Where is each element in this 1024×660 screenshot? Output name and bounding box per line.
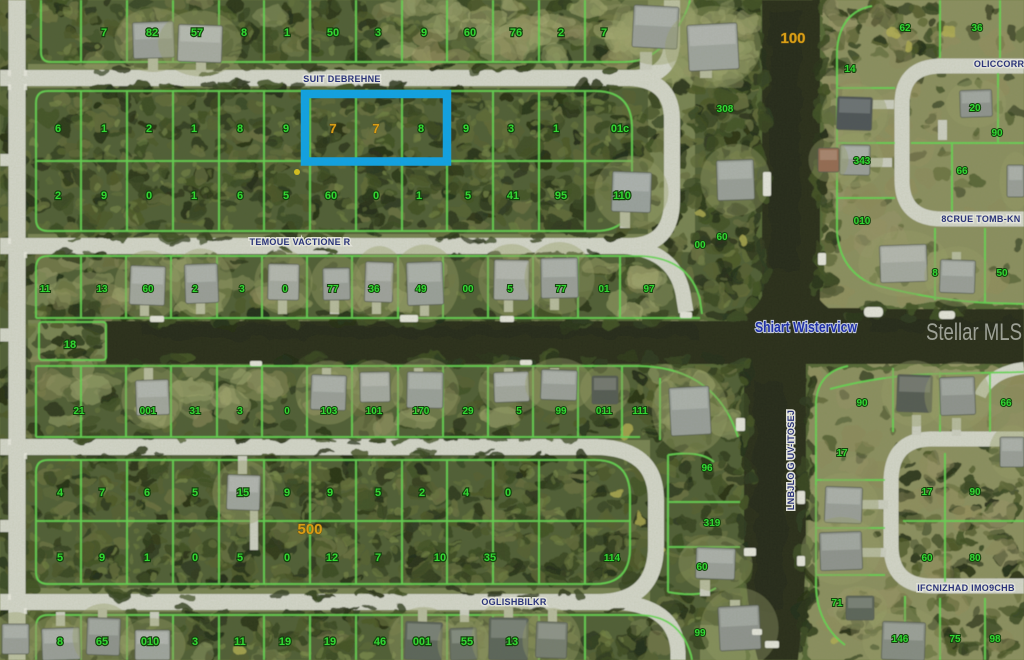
svg-text:Stellar MLS: Stellar MLS [926, 319, 1022, 346]
